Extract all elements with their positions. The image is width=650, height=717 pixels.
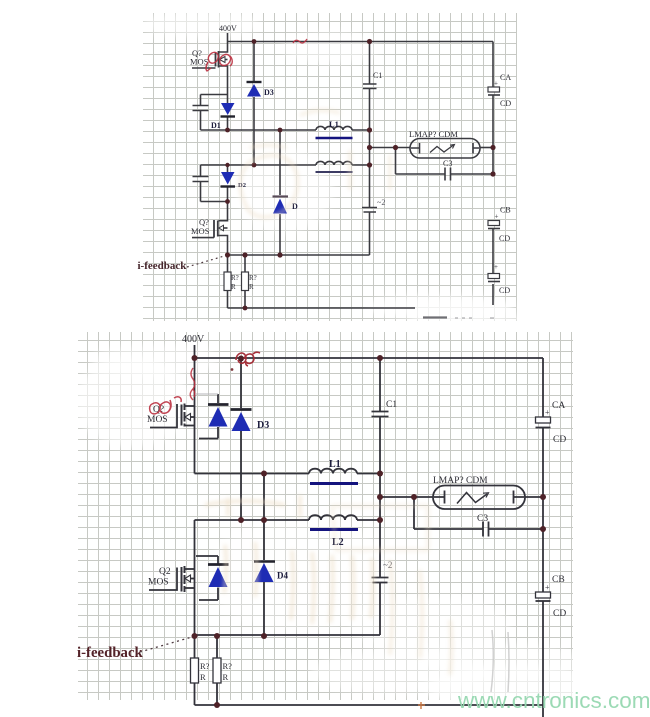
svg-text:CD: CD xyxy=(499,234,510,243)
svg-text:+: + xyxy=(545,583,550,592)
svg-text:MOS: MOS xyxy=(147,415,168,425)
svg-text:LMAP? CDM: LMAP? CDM xyxy=(409,129,458,139)
svg-text:MOS: MOS xyxy=(148,578,169,588)
svg-text:i-feedback: i-feedback xyxy=(77,645,144,661)
svg-text:MOS: MOS xyxy=(191,226,210,236)
svg-text:R: R xyxy=(223,672,229,682)
svg-text:R: R xyxy=(200,672,206,682)
svg-text:D3: D3 xyxy=(257,420,269,431)
svg-text:CA: CA xyxy=(500,73,511,82)
svg-text:CD: CD xyxy=(553,435,566,445)
svg-text:+: + xyxy=(494,263,498,271)
svg-text:R: R xyxy=(231,283,236,291)
svg-text:D1: D1 xyxy=(211,121,221,130)
svg-text:R: R xyxy=(249,283,254,291)
svg-text:MOS: MOS xyxy=(190,57,209,67)
svg-text:C3: C3 xyxy=(477,514,488,524)
svg-text:CB: CB xyxy=(552,575,565,585)
svg-text:R?: R? xyxy=(249,274,257,282)
svg-text:400V: 400V xyxy=(219,24,237,33)
svg-text:400V: 400V xyxy=(182,334,205,345)
svg-text:C1: C1 xyxy=(373,71,382,80)
svg-text:C1: C1 xyxy=(386,400,397,410)
svg-text:CD: CD xyxy=(499,286,510,295)
svg-text:L1: L1 xyxy=(329,459,341,470)
svg-text:CD: CD xyxy=(553,609,566,619)
svg-text:D3: D3 xyxy=(264,88,274,97)
svg-text:i-feedback: i-feedback xyxy=(138,260,188,272)
svg-text:R?: R? xyxy=(200,661,210,671)
svg-text:Q2: Q2 xyxy=(159,567,171,577)
svg-text:L1: L1 xyxy=(329,119,339,129)
svg-text:+: + xyxy=(494,80,498,88)
svg-text:D4: D4 xyxy=(277,571,288,581)
svg-text:CA: CA xyxy=(552,401,565,411)
svg-text:R?: R? xyxy=(231,274,239,282)
svg-text:www.cntronics.com: www.cntronics.com xyxy=(457,688,650,713)
svg-text:C3: C3 xyxy=(443,159,452,168)
svg-text:CB: CB xyxy=(500,206,511,215)
svg-text:R?: R? xyxy=(223,661,233,671)
svg-text:CD: CD xyxy=(500,99,511,108)
svg-text:D: D xyxy=(292,202,298,211)
svg-text:~2: ~2 xyxy=(377,198,385,207)
svg-text:+: + xyxy=(545,408,550,417)
svg-text:LMAP? CDM: LMAP? CDM xyxy=(433,476,488,486)
svg-text:+: + xyxy=(495,213,499,221)
